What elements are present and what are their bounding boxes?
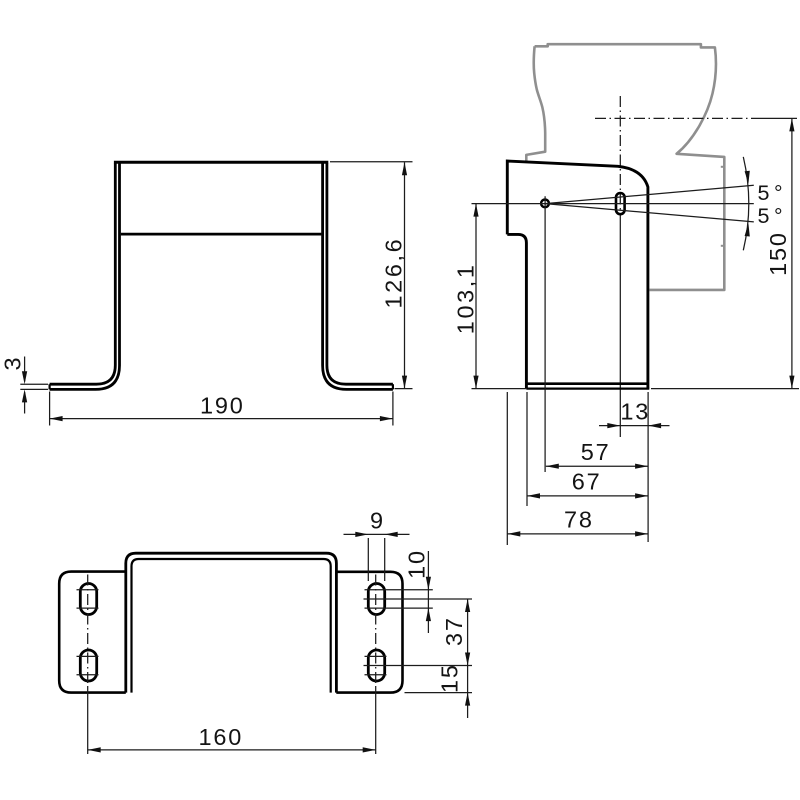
svg-text:150: 150 [765, 231, 791, 276]
svg-text:37: 37 [441, 616, 467, 646]
svg-text:78: 78 [564, 506, 594, 532]
svg-text:67: 67 [572, 468, 602, 494]
svg-text:9: 9 [370, 508, 383, 534]
svg-text:13: 13 [620, 398, 650, 424]
svg-text:126,6: 126,6 [381, 237, 407, 309]
svg-text:3: 3 [0, 357, 25, 370]
svg-text:103,1: 103,1 [452, 262, 478, 334]
svg-text:160: 160 [198, 724, 243, 750]
svg-text:57: 57 [581, 439, 611, 465]
svg-text:15: 15 [437, 663, 463, 693]
svg-text:190: 190 [200, 393, 245, 419]
svg-text:10: 10 [404, 549, 430, 579]
